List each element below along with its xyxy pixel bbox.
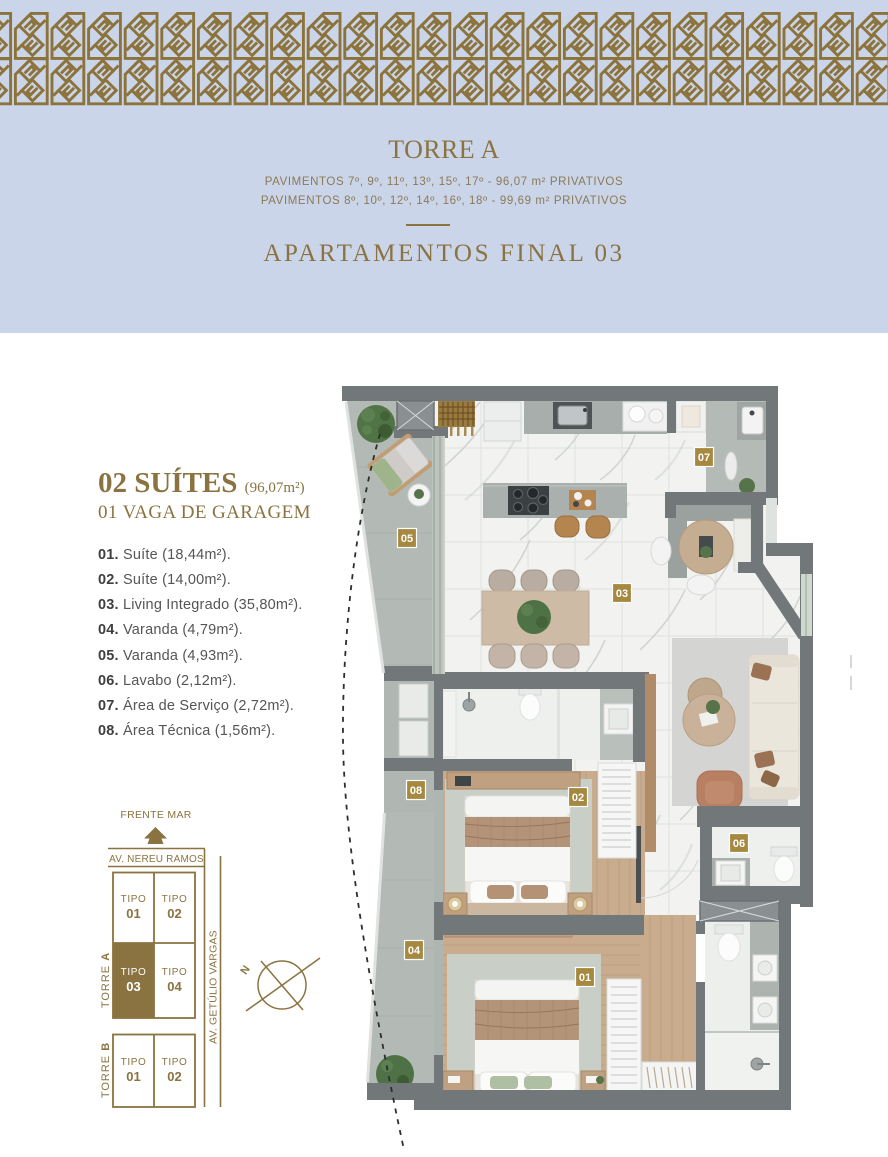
svg-text:07: 07 <box>698 452 710 464</box>
svg-text:04: 04 <box>408 945 421 957</box>
svg-text:08: 08 <box>410 785 422 797</box>
svg-text:03: 03 <box>616 588 628 600</box>
svg-text:06: 06 <box>733 838 745 850</box>
svg-text:05: 05 <box>401 533 413 545</box>
svg-text:01: 01 <box>579 972 591 984</box>
svg-text:02: 02 <box>572 792 584 804</box>
